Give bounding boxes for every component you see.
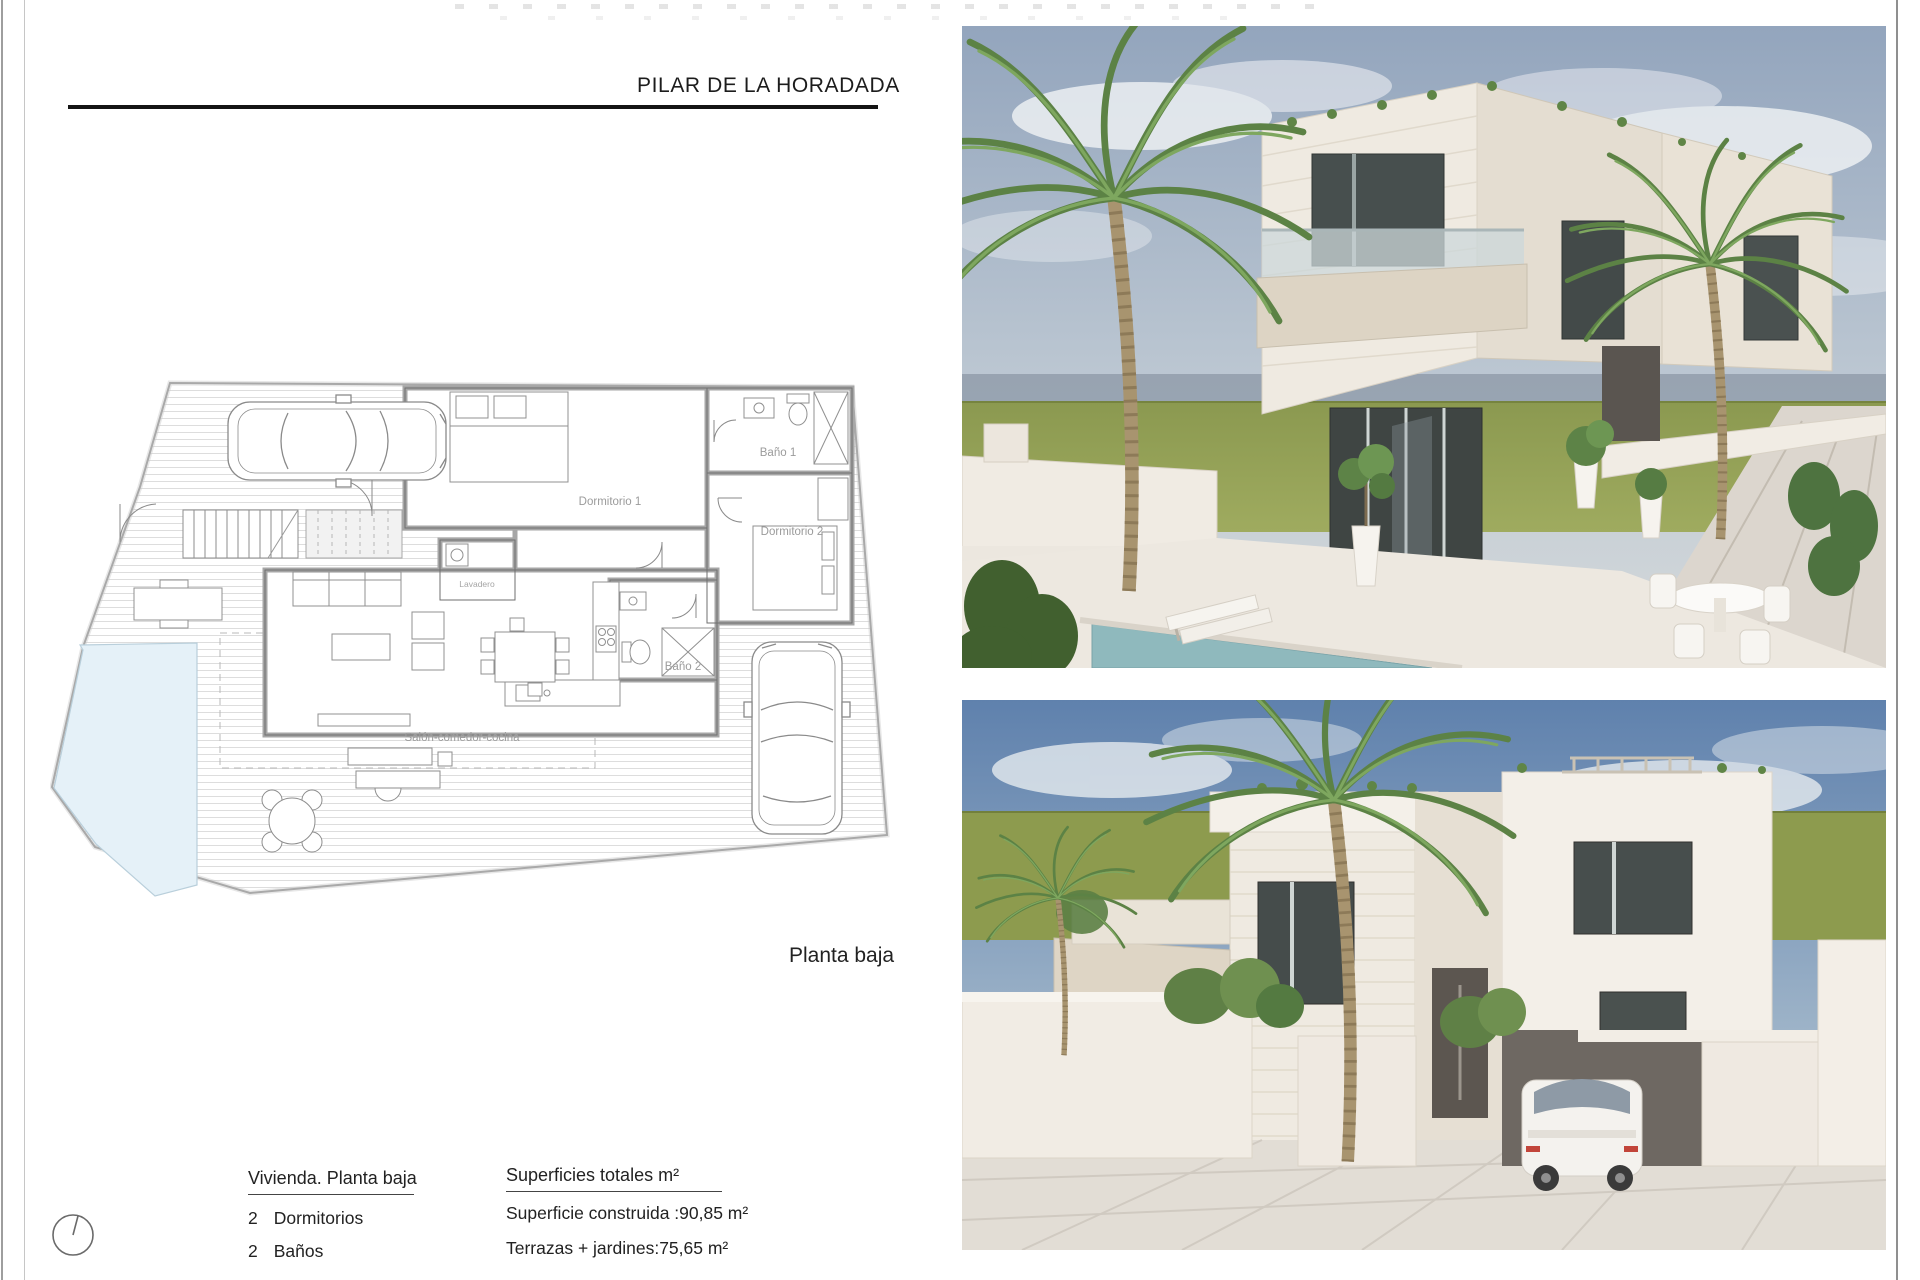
page-border-right: [1896, 0, 1898, 1280]
room-label-bano2: Baño 2: [665, 661, 701, 673]
page-border-left-outer: [1, 0, 3, 1280]
washer: [446, 544, 468, 566]
window-right-upper: [1574, 842, 1692, 934]
room-label-dormitorio1: Dormitorio 1: [579, 496, 642, 508]
room-label-salon: Salón-comedor-cocina: [404, 732, 520, 744]
porch-hatch: [306, 510, 402, 558]
car-driveway-top-view: [744, 642, 850, 834]
cropped-header-text: [455, 4, 1315, 9]
stairs: [183, 510, 298, 558]
room-label-dormitorio2: Dormitorio 2: [761, 526, 824, 538]
round-table-set: [262, 790, 322, 852]
north-indicator-icon: [48, 1210, 98, 1260]
floor-plan-drawing: Dormitorio 1 Baño 1 Dormitorio 2 Lavader…: [50, 380, 900, 960]
area-row-built: Superficie construida : 90,85 m²: [506, 1203, 728, 1224]
cropped-header-text-2: [500, 16, 1260, 20]
wing-window-2: [1744, 236, 1798, 340]
built-area-label: Superficie construida :: [506, 1203, 679, 1224]
bathrooms-count: 2: [248, 1241, 258, 1262]
car-garage-top-view: [228, 395, 446, 487]
tv-bench: [318, 714, 410, 726]
car-front-view: [1522, 1079, 1642, 1191]
summary-title: Vivienda. Planta baja: [248, 1168, 414, 1195]
bedrooms-label: Dormitorios: [274, 1208, 363, 1229]
page-title: PILAR DE LA HORADADA: [637, 74, 900, 98]
built-area-value: 90,85 m²: [679, 1203, 748, 1224]
plan-sheet: PILAR DE LA HORADADA: [0, 0, 1920, 1280]
terraces-area-value: 75,65 m²: [659, 1238, 728, 1259]
plan-caption: Planta baja: [789, 944, 894, 968]
terraces-area-label: Terrazas + jardines:: [506, 1238, 659, 1259]
render-front-elevation: [962, 700, 1886, 1250]
sofa: [293, 572, 401, 606]
coffee-table: [332, 634, 390, 660]
render-exterior-corner: [962, 26, 1886, 668]
bathrooms-label: Baños: [274, 1241, 324, 1262]
bedrooms-count: 2: [248, 1208, 258, 1229]
title-rule: [68, 105, 878, 109]
taillight: [1526, 1146, 1540, 1152]
bed-dormitorio1: [450, 392, 568, 482]
summary-row-bedrooms: 2 Dormitorios: [248, 1208, 363, 1229]
room-label-lavadero: Lavadero: [459, 579, 495, 589]
page-border-left-inner: [24, 0, 25, 1280]
summary-row-bathrooms: 2 Baños: [248, 1241, 323, 1262]
areas-title: Superficies totales m²: [506, 1165, 722, 1192]
room-label-bano1: Baño 1: [760, 447, 796, 459]
area-row-terraces: Terrazas + jardines: 75,65 m²: [506, 1238, 728, 1259]
